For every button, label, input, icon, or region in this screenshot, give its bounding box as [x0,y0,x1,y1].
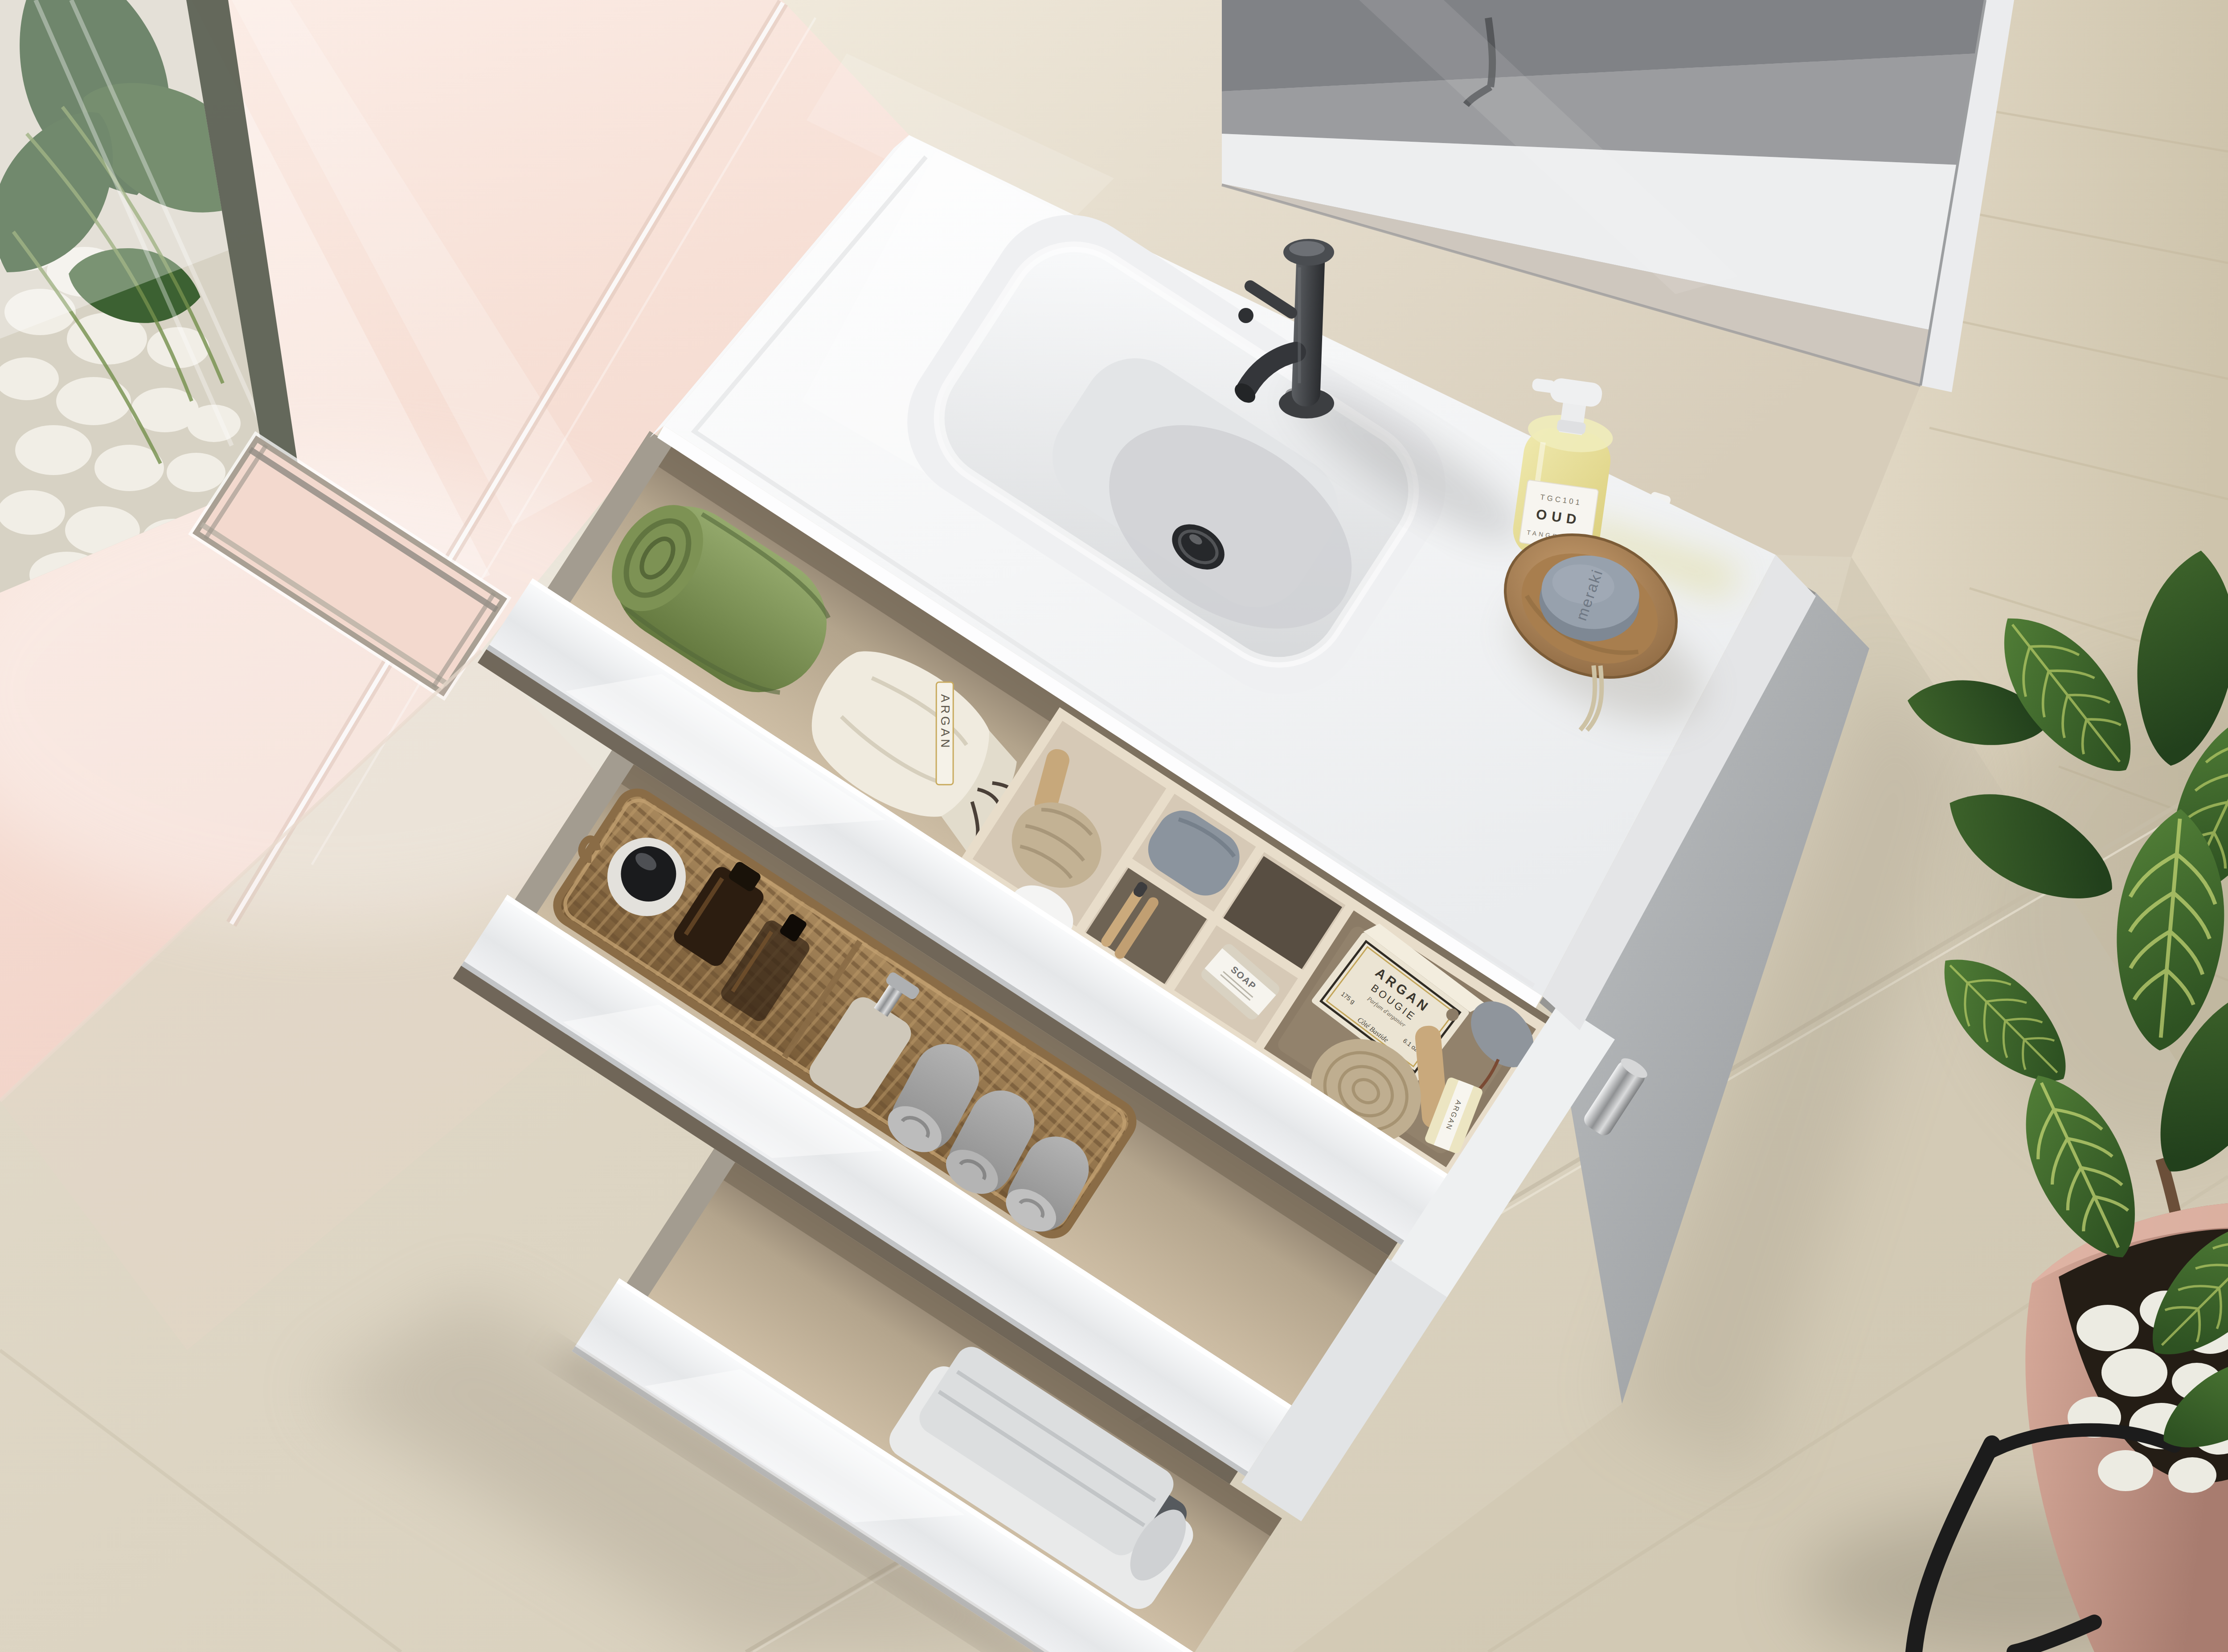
svg-text:ARGAN: ARGAN [938,694,952,750]
bathroom-photo: ARGAN [0,0,2228,1652]
screenshot-root: ARGAN [0,0,2228,1652]
sachet-tag: ARGAN [936,682,953,785]
